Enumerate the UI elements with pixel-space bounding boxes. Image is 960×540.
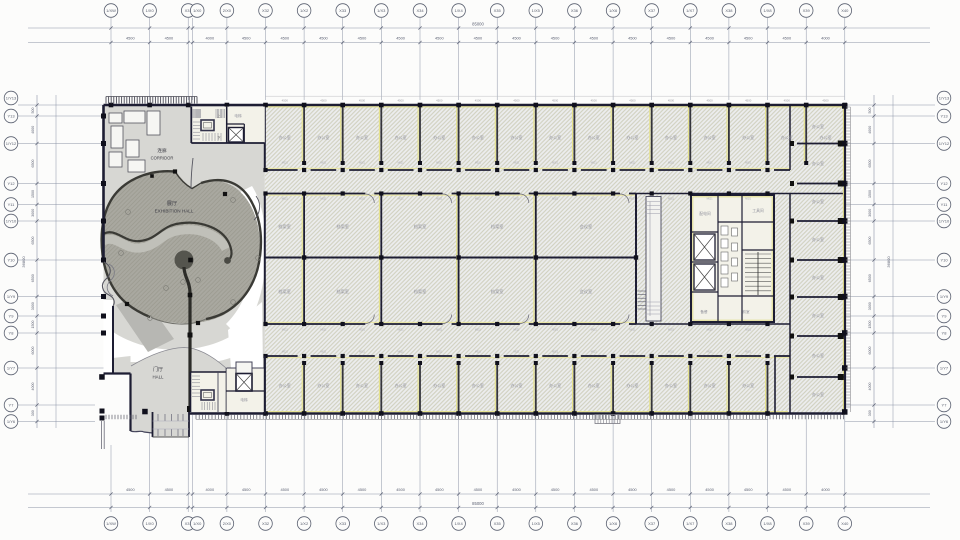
svg-text:4500: 4500 (784, 99, 791, 103)
svg-text:4500: 4500 (822, 99, 829, 103)
svg-text:1/Y7: 1/Y7 (940, 366, 949, 371)
svg-text:4000: 4000 (205, 487, 214, 492)
svg-text:1/X2: 1/X2 (300, 521, 309, 526)
svg-text:4500: 4500 (667, 487, 676, 492)
svg-text:1/X6: 1/X6 (609, 8, 618, 13)
svg-text:办公室: 办公室 (549, 134, 561, 140)
svg-text:1/Y10: 1/Y10 (939, 219, 950, 224)
svg-text:M021: M021 (514, 329, 521, 332)
svg-text:电梯: 电梯 (234, 113, 242, 118)
svg-text:X37: X37 (648, 521, 656, 526)
svg-text:1/X0: 1/X0 (145, 521, 154, 526)
svg-text:6500: 6500 (31, 274, 35, 282)
svg-text:1/Y12: 1/Y12 (939, 141, 950, 146)
svg-text:1/Y7: 1/Y7 (7, 366, 16, 371)
svg-text:M021: M021 (514, 351, 521, 354)
svg-text:4500: 4500 (512, 487, 521, 492)
svg-text:M021: M021 (745, 198, 752, 201)
svg-text:M021: M021 (359, 351, 366, 354)
svg-text:M021: M021 (745, 351, 752, 354)
svg-text:档案室: 档案室 (336, 223, 349, 230)
svg-text:2/X0: 2/X0 (223, 521, 232, 526)
svg-text:M021: M021 (745, 162, 752, 165)
svg-text:4000: 4000 (868, 383, 872, 391)
svg-text:M021: M021 (359, 329, 366, 332)
svg-text:4500: 4500 (513, 99, 520, 103)
svg-text:M021: M021 (552, 198, 559, 201)
svg-text:1/Y9: 1/Y9 (940, 294, 949, 299)
svg-text:4500: 4500 (705, 487, 714, 492)
svg-text:M021: M021 (398, 198, 405, 201)
svg-text:办公室: 办公室 (812, 160, 824, 166)
svg-text:档案室: 档案室 (414, 288, 427, 295)
svg-text:4000: 4000 (821, 36, 830, 41)
svg-text:4000: 4000 (868, 126, 872, 134)
svg-text:4500: 4500 (551, 487, 560, 492)
svg-text:M021: M021 (629, 351, 636, 354)
svg-text:门厅: 门厅 (153, 366, 163, 373)
svg-text:办公室: 办公室 (588, 382, 600, 388)
svg-text:4500: 4500 (319, 36, 328, 41)
svg-text:4500: 4500 (397, 99, 404, 103)
svg-text:办公室: 办公室 (704, 134, 716, 140)
svg-text:4500: 4500 (242, 36, 251, 41)
svg-text:X40: X40 (841, 8, 849, 13)
svg-text:85000: 85000 (472, 22, 484, 27)
svg-text:4500: 4500 (474, 36, 483, 41)
svg-text:配电间: 配电间 (699, 211, 711, 216)
svg-text:Y11: Y11 (8, 202, 16, 207)
svg-text:500: 500 (31, 108, 35, 114)
svg-text:6500: 6500 (868, 237, 872, 245)
svg-text:档案室: 档案室 (278, 288, 291, 295)
svg-text:办公室: 办公室 (820, 134, 832, 140)
svg-text:4500: 4500 (782, 487, 791, 492)
svg-text:M021: M021 (668, 351, 675, 354)
svg-text:1/Y13: 1/Y13 (939, 96, 950, 101)
svg-text:X36: X36 (571, 521, 579, 526)
svg-text:1/X7: 1/X7 (686, 8, 695, 13)
svg-text:4500: 4500 (706, 99, 713, 103)
svg-text:M021: M021 (475, 329, 482, 332)
svg-text:M021: M021 (707, 329, 714, 332)
svg-text:Y13: Y13 (7, 114, 15, 119)
svg-text:X39: X39 (803, 8, 811, 13)
svg-text:1/Y13: 1/Y13 (6, 96, 17, 101)
svg-text:办公室: 办公室 (356, 134, 368, 140)
svg-text:1/XW: 1/XW (106, 521, 116, 526)
svg-text:1/X2: 1/X2 (300, 8, 309, 13)
svg-text:X37: X37 (648, 8, 656, 13)
svg-text:4500: 4500 (629, 99, 636, 103)
svg-text:M021: M021 (707, 351, 714, 354)
svg-text:1500: 1500 (868, 190, 872, 198)
svg-text:办公室: 办公室 (395, 382, 407, 388)
svg-text:4500: 4500 (396, 487, 405, 492)
svg-text:4500: 4500 (126, 36, 135, 41)
svg-text:4500: 4500 (589, 487, 598, 492)
svg-text:X38: X38 (725, 521, 733, 526)
svg-text:X38: X38 (725, 8, 733, 13)
svg-text:X33: X33 (339, 521, 347, 526)
svg-text:M021: M021 (359, 162, 366, 165)
svg-text:4500: 4500 (396, 36, 405, 41)
svg-text:4000: 4000 (31, 383, 35, 391)
svg-text:4500: 4500 (435, 487, 444, 492)
svg-text:X32: X32 (262, 521, 270, 526)
svg-text:M021: M021 (668, 329, 675, 332)
svg-text:4500: 4500 (782, 36, 791, 41)
svg-text:办公室: 办公室 (433, 382, 445, 388)
svg-text:M021: M021 (591, 162, 598, 165)
svg-text:4500: 4500 (744, 36, 753, 41)
svg-text:X39: X39 (803, 521, 811, 526)
svg-text:4000: 4000 (31, 126, 35, 134)
svg-text:4500: 4500 (512, 36, 521, 41)
svg-text:办公室: 办公室 (742, 134, 754, 140)
svg-text:M021: M021 (552, 329, 559, 332)
svg-text:Y7: Y7 (9, 403, 15, 408)
svg-text:4500: 4500 (320, 99, 327, 103)
svg-text:Y13: Y13 (940, 114, 948, 119)
svg-text:M021: M021 (514, 198, 521, 201)
svg-text:1500: 1500 (868, 321, 872, 329)
svg-text:X34: X34 (416, 521, 424, 526)
svg-text:4500: 4500 (242, 487, 251, 492)
svg-text:X36: X36 (571, 8, 579, 13)
svg-text:M021: M021 (629, 162, 636, 165)
svg-text:档案室: 档案室 (278, 223, 291, 230)
svg-text:Y9: Y9 (9, 314, 15, 319)
svg-text:EXHIBITION HALL: EXHIBITION HALL (155, 209, 194, 214)
svg-text:办公室: 办公室 (812, 352, 824, 358)
svg-text:展厅: 展厅 (167, 200, 177, 207)
svg-text:办公室: 办公室 (812, 312, 824, 318)
svg-text:4500: 4500 (668, 99, 675, 103)
svg-text:办公室: 办公室 (812, 274, 824, 280)
svg-text:办公室: 办公室 (742, 382, 754, 388)
svg-text:1/X8: 1/X8 (763, 8, 772, 13)
svg-text:1/Y10: 1/Y10 (6, 219, 17, 224)
svg-text:M021: M021 (282, 162, 289, 165)
svg-text:M021: M021 (398, 329, 405, 332)
svg-text:M021: M021 (668, 162, 675, 165)
svg-text:会议室: 会议室 (580, 288, 593, 295)
svg-text:连廊: 连廊 (157, 147, 167, 154)
svg-text:1/X0: 1/X0 (193, 521, 202, 526)
svg-text:1/X5: 1/X5 (532, 8, 541, 13)
svg-text:6500: 6500 (868, 274, 872, 282)
svg-text:4500: 4500 (358, 487, 367, 492)
svg-text:办公室: 办公室 (812, 198, 824, 204)
svg-text:M021: M021 (398, 162, 405, 165)
svg-text:X32: X32 (262, 8, 270, 13)
svg-text:M021: M021 (475, 351, 482, 354)
svg-text:档案室: 档案室 (336, 288, 349, 295)
svg-text:M021: M021 (629, 329, 636, 332)
svg-text:Y9: Y9 (942, 314, 948, 319)
svg-text:4500: 4500 (475, 99, 482, 103)
svg-text:HALL: HALL (153, 375, 165, 380)
svg-text:M021: M021 (591, 351, 598, 354)
svg-text:X40: X40 (841, 521, 849, 526)
svg-text:Y12: Y12 (7, 181, 15, 186)
svg-text:M021: M021 (591, 329, 598, 332)
svg-text:档案室: 档案室 (414, 223, 427, 230)
svg-text:1/Y6: 1/Y6 (7, 419, 16, 424)
svg-text:1/X3: 1/X3 (377, 521, 386, 526)
svg-text:M021: M021 (629, 198, 636, 201)
svg-text:电梯: 电梯 (240, 397, 248, 402)
svg-text:1/Y9: 1/Y9 (7, 294, 16, 299)
svg-text:M021: M021 (552, 162, 559, 165)
svg-text:办公室: 办公室 (433, 134, 445, 140)
svg-text:4500: 4500 (165, 36, 174, 41)
svg-text:M021: M021 (320, 351, 327, 354)
svg-text:6000: 6000 (868, 347, 872, 355)
svg-text:1/XW: 1/XW (106, 8, 116, 13)
svg-text:1/Y12: 1/Y12 (6, 141, 17, 146)
svg-text:M021: M021 (745, 329, 752, 332)
svg-text:Y8: Y8 (942, 331, 948, 336)
svg-text:M021: M021 (475, 162, 482, 165)
svg-text:M021: M021 (707, 198, 714, 201)
svg-text:M021: M021 (359, 198, 366, 201)
svg-text:4500: 4500 (319, 487, 328, 492)
svg-text:M021: M021 (436, 198, 443, 201)
svg-text:办公室: 办公室 (279, 134, 291, 140)
svg-text:办公室: 办公室 (511, 134, 523, 140)
svg-text:500: 500 (868, 108, 872, 114)
svg-text:M021: M021 (668, 198, 675, 201)
svg-text:M021: M021 (707, 162, 714, 165)
svg-text:4500: 4500 (552, 99, 559, 103)
svg-text:X33: X33 (339, 8, 347, 13)
svg-text:M021: M021 (282, 198, 289, 201)
svg-text:办公室: 办公室 (279, 382, 291, 388)
svg-text:4500: 4500 (165, 487, 174, 492)
svg-text:办公室: 办公室 (626, 382, 638, 388)
svg-text:办公室: 办公室 (812, 391, 824, 397)
svg-text:备餐: 备餐 (700, 309, 708, 314)
svg-text:M021: M021 (320, 198, 327, 201)
svg-text:1/X6: 1/X6 (609, 521, 618, 526)
svg-text:M021: M021 (282, 329, 289, 332)
svg-text:4500: 4500 (280, 36, 289, 41)
svg-text:3000: 3000 (31, 209, 35, 217)
svg-text:M021: M021 (475, 198, 482, 201)
svg-text:1/X0: 1/X0 (145, 8, 154, 13)
svg-text:1/X3: 1/X3 (377, 8, 386, 13)
svg-text:前室: 前室 (742, 309, 750, 314)
svg-text:4500: 4500 (551, 36, 560, 41)
svg-text:CORRIDOR: CORRIDOR (151, 156, 174, 161)
svg-text:4500: 4500 (705, 36, 714, 41)
svg-text:4500: 4500 (282, 99, 289, 103)
svg-text:Y10: Y10 (940, 258, 948, 263)
svg-text:M021: M021 (514, 162, 521, 165)
svg-text:Y10: Y10 (7, 258, 15, 263)
svg-text:6500: 6500 (868, 160, 872, 168)
svg-text:6500: 6500 (31, 160, 35, 168)
svg-text:4500: 4500 (591, 99, 598, 103)
svg-text:M021: M021 (320, 329, 327, 332)
svg-text:M021: M021 (552, 351, 559, 354)
svg-text:办公室: 办公室 (511, 382, 523, 388)
svg-text:Y8: Y8 (9, 331, 15, 336)
svg-text:办公室: 办公室 (395, 134, 407, 140)
svg-text:办公室: 办公室 (626, 134, 638, 140)
svg-text:M021: M021 (436, 329, 443, 332)
svg-text:4500: 4500 (436, 99, 443, 103)
svg-text:6000: 6000 (31, 347, 35, 355)
svg-text:M021: M021 (398, 351, 405, 354)
svg-text:办公室: 办公室 (812, 123, 824, 129)
svg-text:1/Y6: 1/Y6 (940, 419, 949, 424)
svg-text:1/X5: 1/X5 (532, 521, 541, 526)
svg-text:M021: M021 (320, 162, 327, 165)
svg-text:36800: 36800 (886, 256, 891, 268)
svg-text:4000: 4000 (205, 36, 214, 41)
svg-text:办公室: 办公室 (704, 382, 716, 388)
svg-text:36800: 36800 (21, 256, 26, 268)
svg-text:办公室: 办公室 (665, 382, 677, 388)
svg-text:档案室: 档案室 (491, 223, 504, 230)
svg-text:1/X4: 1/X4 (454, 8, 463, 13)
svg-text:办公室: 办公室 (472, 382, 484, 388)
svg-text:85000: 85000 (472, 501, 484, 506)
svg-text:会议室: 会议室 (580, 223, 593, 230)
svg-text:办公室: 办公室 (665, 134, 677, 140)
svg-text:1/X0: 1/X0 (193, 8, 202, 13)
svg-text:办公室: 办公室 (356, 382, 368, 388)
svg-text:300: 300 (31, 410, 35, 416)
svg-text:1/X8: 1/X8 (763, 521, 772, 526)
svg-text:4500: 4500 (474, 487, 483, 492)
svg-text:X35: X35 (494, 8, 502, 13)
svg-text:4500: 4500 (435, 36, 444, 41)
svg-text:4500: 4500 (358, 36, 367, 41)
svg-text:4500: 4500 (744, 487, 753, 492)
svg-text:档案室: 档案室 (491, 288, 504, 295)
svg-text:M021: M021 (436, 162, 443, 165)
svg-text:4500: 4500 (628, 36, 637, 41)
svg-text:4500: 4500 (359, 99, 366, 103)
svg-text:1/X4: 1/X4 (454, 521, 463, 526)
svg-text:办公室: 办公室 (472, 134, 484, 140)
svg-text:6500: 6500 (31, 237, 35, 245)
svg-text:1/X7: 1/X7 (686, 521, 695, 526)
svg-text:办公室: 办公室 (781, 134, 793, 140)
svg-text:M021: M021 (591, 198, 598, 201)
svg-text:办公室: 办公室 (588, 134, 600, 140)
svg-text:1500: 1500 (31, 190, 35, 198)
svg-text:办公室: 办公室 (317, 382, 329, 388)
svg-text:4500: 4500 (126, 487, 135, 492)
svg-text:X34: X34 (416, 8, 424, 13)
svg-text:办公室: 办公室 (549, 382, 561, 388)
svg-text:办公室: 办公室 (812, 236, 824, 242)
svg-text:X35: X35 (494, 521, 502, 526)
svg-text:工具间: 工具间 (752, 208, 764, 213)
svg-text:3000: 3000 (868, 302, 872, 310)
svg-text:Y12: Y12 (940, 181, 948, 186)
svg-text:4500: 4500 (628, 487, 637, 492)
svg-text:300: 300 (868, 410, 872, 416)
svg-text:Y7: Y7 (942, 403, 948, 408)
svg-text:4500: 4500 (589, 36, 598, 41)
svg-text:4000: 4000 (821, 487, 830, 492)
svg-text:办公室: 办公室 (317, 134, 329, 140)
svg-text:2/X0: 2/X0 (223, 8, 232, 13)
svg-text:4500: 4500 (280, 487, 289, 492)
svg-text:Y11: Y11 (941, 202, 949, 207)
svg-text:M021: M021 (282, 351, 289, 354)
svg-text:3000: 3000 (868, 209, 872, 217)
svg-text:1500: 1500 (31, 321, 35, 329)
svg-text:4500: 4500 (745, 99, 752, 103)
svg-text:4500: 4500 (667, 36, 676, 41)
svg-text:3000: 3000 (31, 302, 35, 310)
svg-text:M021: M021 (436, 351, 443, 354)
